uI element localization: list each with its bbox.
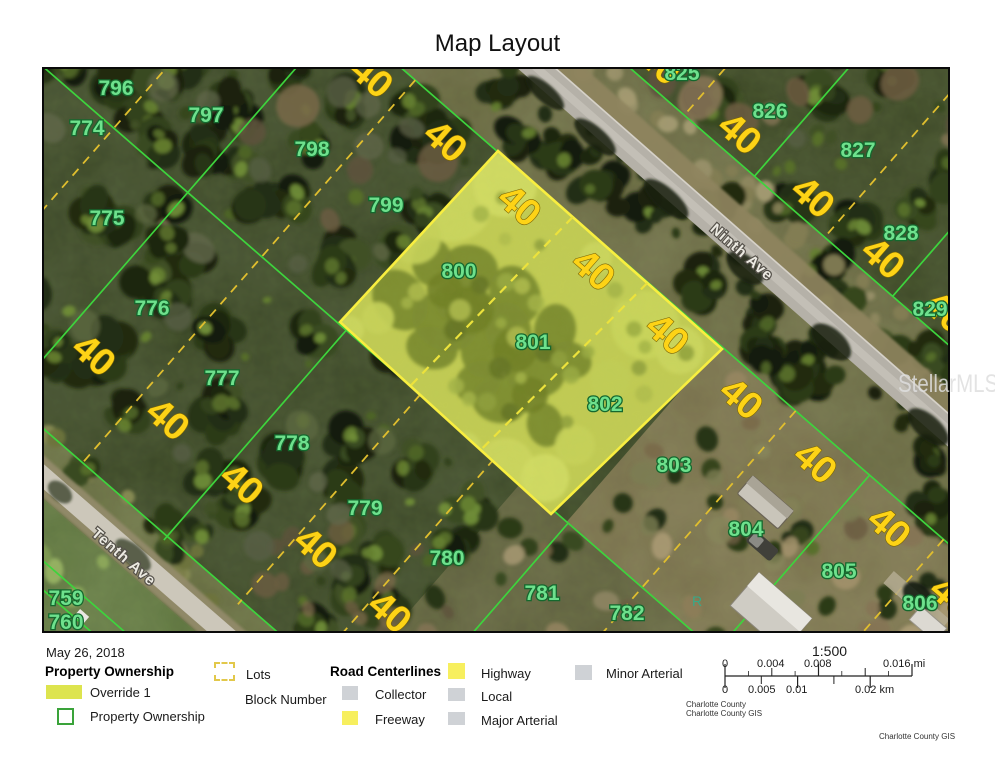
svg-text:799: 799 bbox=[368, 194, 403, 217]
svg-text:R: R bbox=[692, 593, 702, 609]
svg-text:805: 805 bbox=[821, 560, 856, 583]
svg-text:760: 760 bbox=[48, 611, 83, 631]
svg-text:801: 801 bbox=[515, 331, 550, 354]
svg-text:776: 776 bbox=[134, 297, 169, 320]
svg-text:778: 778 bbox=[274, 432, 309, 455]
svg-text:826: 826 bbox=[752, 100, 787, 123]
svg-text:825: 825 bbox=[664, 69, 699, 85]
svg-text:759: 759 bbox=[48, 587, 83, 610]
svg-text:781: 781 bbox=[524, 582, 559, 605]
svg-text:796: 796 bbox=[98, 77, 133, 100]
svg-text:775: 775 bbox=[89, 207, 124, 230]
svg-text:803: 803 bbox=[656, 454, 691, 477]
svg-text:806: 806 bbox=[902, 592, 937, 615]
svg-text:802: 802 bbox=[587, 393, 622, 416]
svg-text:779: 779 bbox=[347, 497, 382, 520]
svg-text:777: 777 bbox=[204, 367, 239, 390]
svg-text:829: 829 bbox=[912, 298, 947, 321]
svg-text:774: 774 bbox=[69, 117, 104, 140]
svg-text:780: 780 bbox=[429, 547, 464, 570]
svg-text:782: 782 bbox=[609, 602, 644, 625]
svg-text:804: 804 bbox=[728, 518, 763, 541]
svg-text:798: 798 bbox=[294, 138, 329, 161]
svg-text:828: 828 bbox=[883, 222, 918, 245]
svg-text:827: 827 bbox=[840, 139, 875, 162]
svg-text:797: 797 bbox=[188, 104, 223, 127]
svg-text:800: 800 bbox=[441, 260, 476, 283]
